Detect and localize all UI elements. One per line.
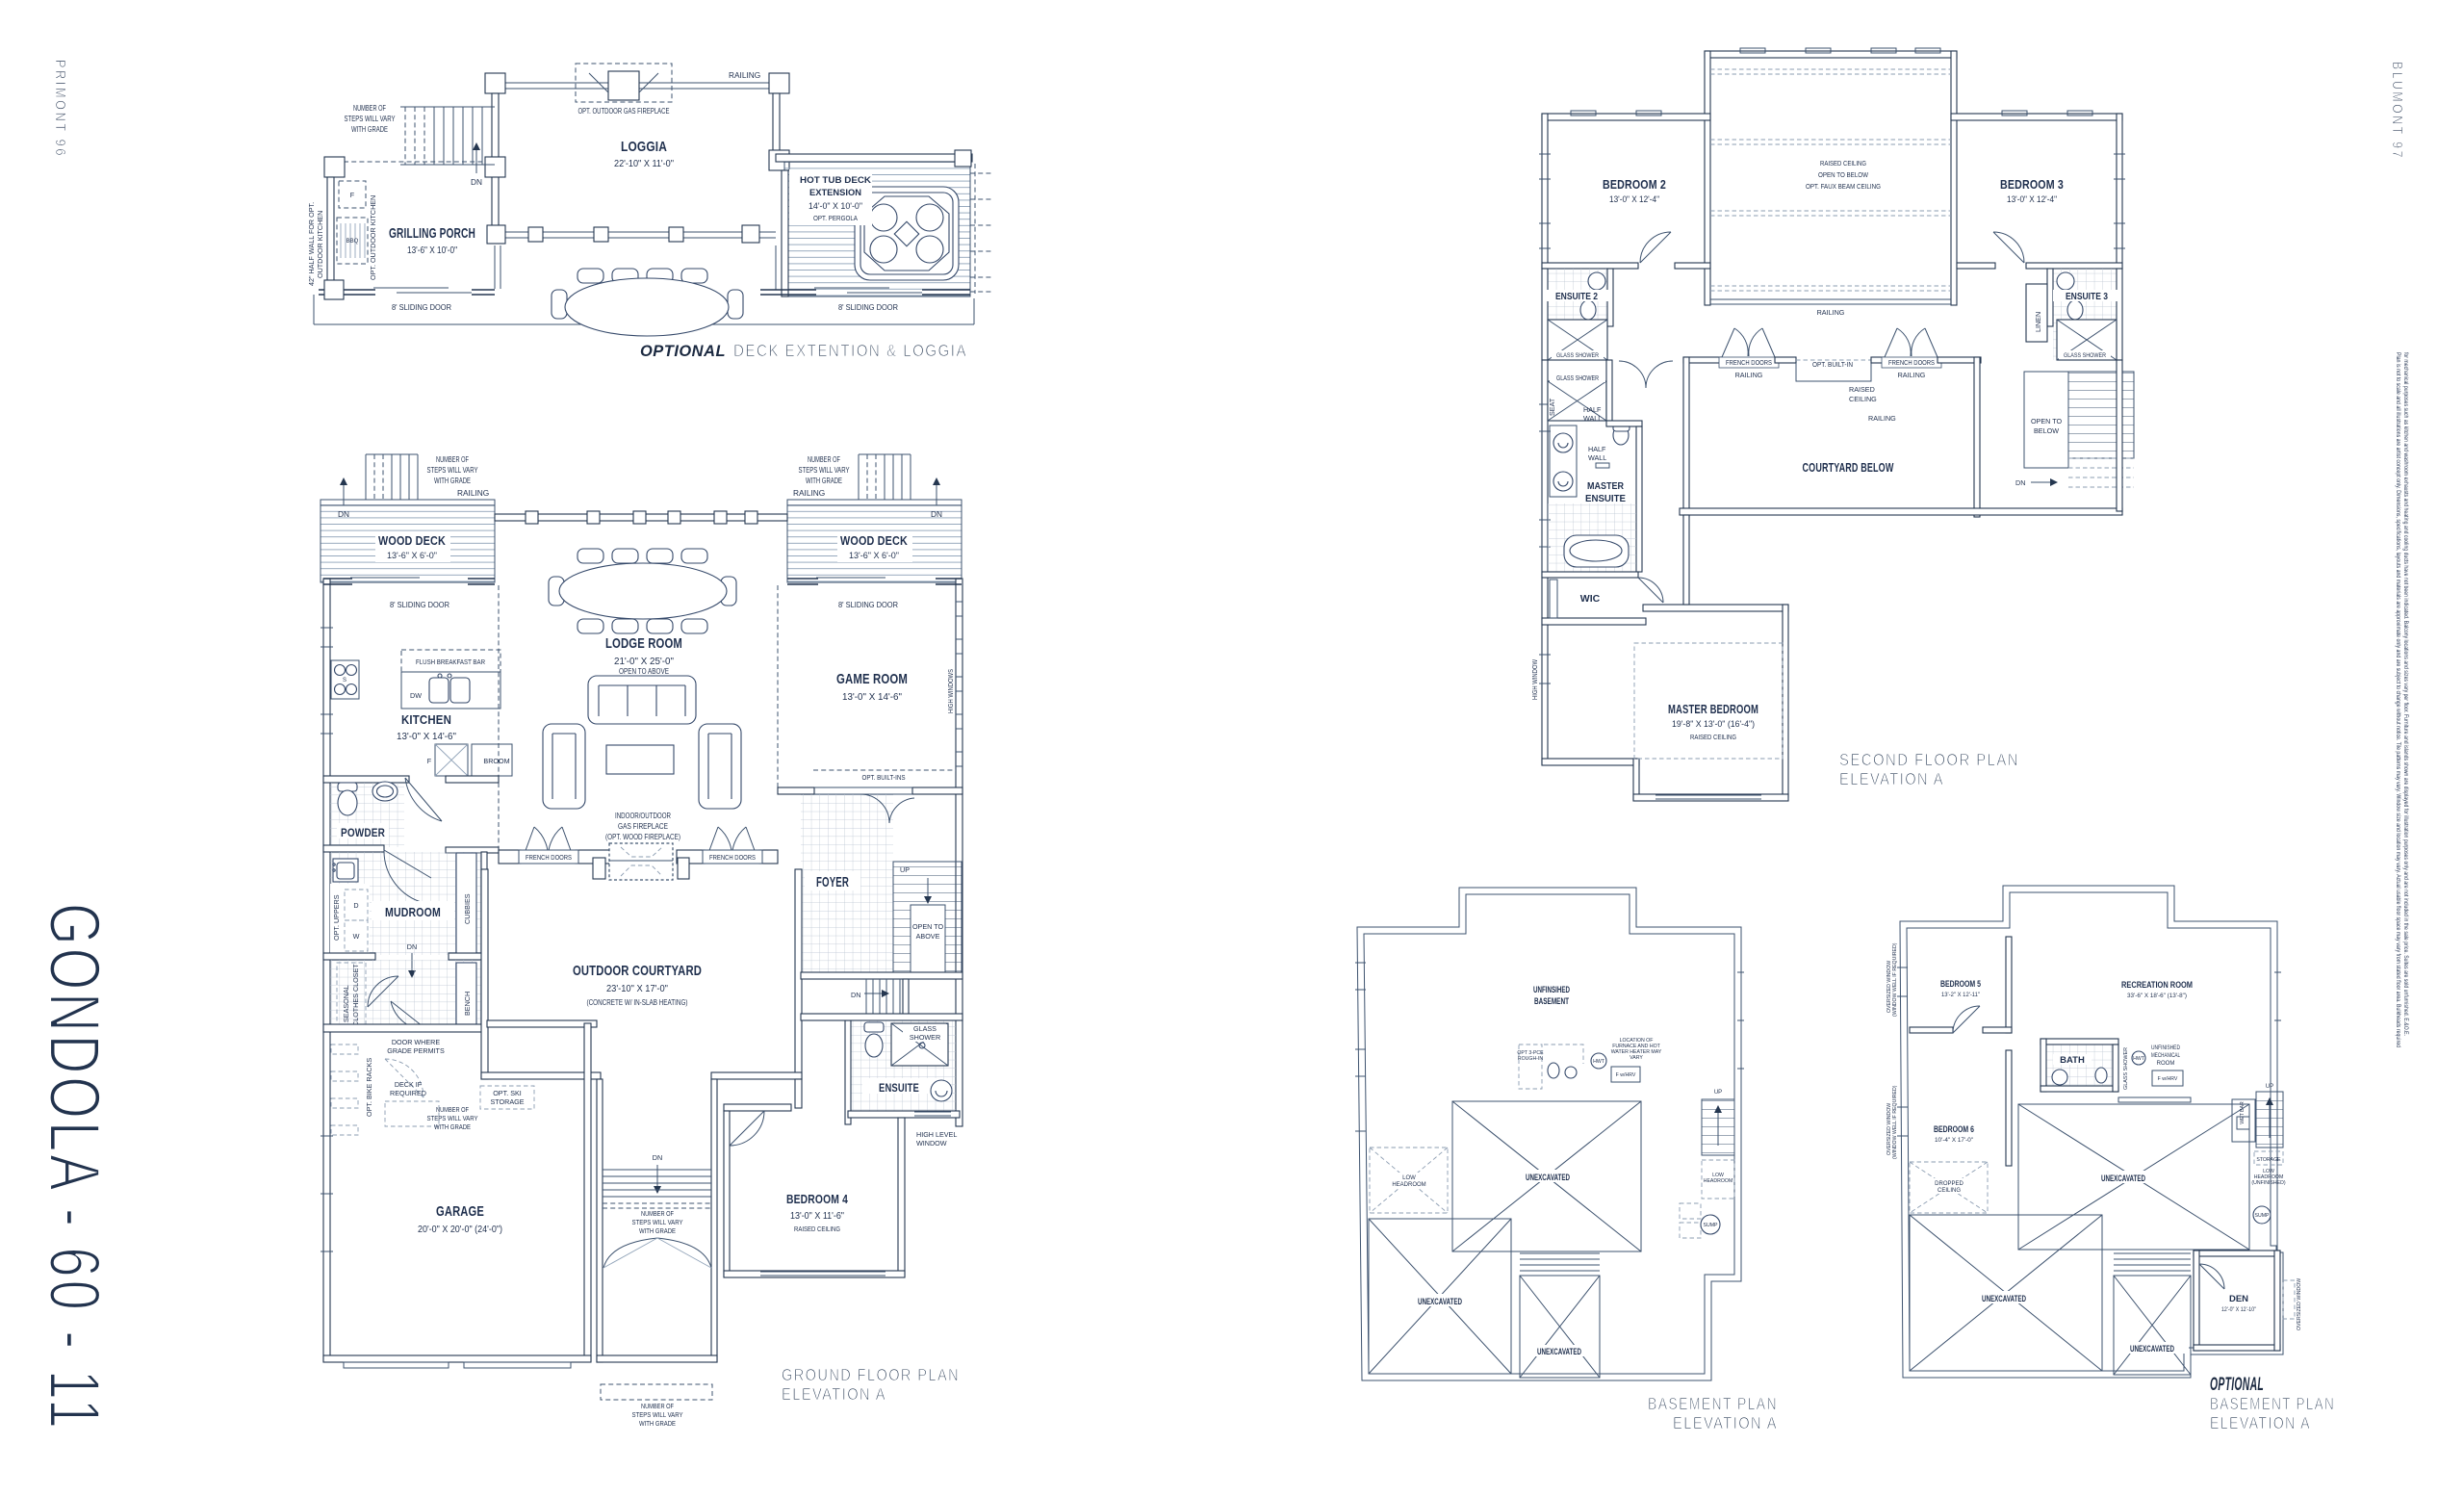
svg-text:WET BAR: WET BAR [2240, 1101, 2246, 1124]
svg-text:NUMBER OF: NUMBER OF [436, 1105, 469, 1114]
svg-text:GONDOLA - 60 - 11: GONDOLA - 60 - 11 [35, 903, 115, 1432]
svg-text:(CONCRETE W/ IN-SLAB HEATING): (CONCRETE W/ IN-SLAB HEATING) [587, 997, 688, 1007]
svg-text:DROPPED: DROPPED [1935, 1181, 1963, 1187]
svg-text:OPT. BUILT-INS: OPT. BUILT-INS [862, 773, 906, 782]
svg-text:SUMP: SUMP [2255, 1213, 2271, 1219]
svg-text:DW: DW [410, 691, 422, 700]
svg-text:F w/HRV: F w/HRV [2158, 1076, 2178, 1082]
svg-text:FLUSH BREAKFAST BAR: FLUSH BREAKFAST BAR [416, 658, 485, 666]
svg-text:WALL: WALL [1588, 453, 1606, 462]
svg-text:RAILING: RAILING [793, 488, 825, 498]
svg-text:Plan is not to scale and all i: Plan is not to scale and all illustratio… [2395, 352, 2401, 1047]
svg-text:OPT. OUTDOOR KITCHEN: OPT. OUTDOOR KITCHEN [369, 195, 377, 280]
svg-text:ELEVATION A: ELEVATION A [1673, 1413, 1778, 1432]
svg-text:RAILING: RAILING [1735, 371, 1763, 379]
svg-text:BASEMENT PLAN: BASEMENT PLAN [1648, 1394, 1778, 1413]
svg-text:ELEVATION A: ELEVATION A [1839, 769, 1944, 788]
svg-text:RAISED CEILING: RAISED CEILING [1820, 159, 1866, 168]
svg-text:RAISED CEILING: RAISED CEILING [794, 1225, 840, 1233]
svg-text:OPT. PERGOLA: OPT. PERGOLA [813, 214, 858, 222]
svg-text:ABOVE: ABOVE [916, 932, 940, 941]
svg-text:WALL: WALL [1583, 414, 1602, 423]
svg-text:BENCH: BENCH [463, 992, 472, 1016]
svg-text:HWT: HWT [2133, 1056, 2145, 1062]
svg-text:8' SLIDING DOOR: 8' SLIDING DOOR [390, 600, 449, 609]
svg-text:20'-0" X 20'-0" (24'-0"): 20'-0" X 20'-0" (24'-0") [418, 1225, 502, 1235]
svg-text:13'-0" X 14'-6": 13'-0" X 14'-6" [397, 732, 456, 742]
svg-text:COURTYARD BELOW: COURTYARD BELOW [1803, 460, 1894, 475]
svg-text:STEPS WILL VARY: STEPS WILL VARY [345, 114, 396, 123]
svg-text:REQUIRED: REQUIRED [390, 1089, 426, 1097]
svg-text:GRADE PERMITS: GRADE PERMITS [387, 1046, 445, 1055]
svg-text:OUTDOOR KITCHEN: OUTDOOR KITCHEN [316, 211, 324, 278]
svg-text:LOW: LOW [1402, 1175, 1416, 1181]
svg-text:13'-0" X 12'-4": 13'-0" X 12'-4" [1609, 194, 1659, 204]
svg-text:8' SLIDING DOOR: 8' SLIDING DOOR [838, 600, 898, 609]
svg-text:UNEXCAVATED: UNEXCAVATED [1526, 1173, 1570, 1183]
svg-text:UP: UP [900, 865, 910, 874]
svg-text:13'-0" X 12'-4": 13'-0" X 12'-4" [2007, 194, 2057, 204]
svg-text:WOOD DECK: WOOD DECK [378, 533, 446, 548]
svg-text:HWT: HWT [1593, 1059, 1605, 1065]
svg-text:OPT. FAUX BEAM CEILING: OPT. FAUX BEAM CEILING [1806, 182, 1881, 191]
svg-text:SHOWER: SHOWER [910, 1033, 940, 1042]
svg-text:8' SLIDING DOOR: 8' SLIDING DOOR [838, 302, 898, 312]
svg-text:DN: DN [2015, 478, 2025, 487]
svg-text:STEPS WILL VARY: STEPS WILL VARY [427, 1114, 478, 1122]
svg-text:VARY: VARY [1630, 1055, 1643, 1061]
svg-text:OPEN TO BELOW: OPEN TO BELOW [1818, 170, 1868, 179]
svg-text:12'-0" X 12'-10": 12'-0" X 12'-10" [2221, 1307, 2256, 1313]
svg-text:F: F [427, 757, 432, 765]
svg-text:STEPS WILL VARY: STEPS WILL VARY [632, 1218, 683, 1226]
svg-text:UNEXCAVATED: UNEXCAVATED [1418, 1297, 1462, 1307]
svg-text:GARAGE: GARAGE [436, 1203, 484, 1220]
svg-text:RAILING: RAILING [729, 70, 760, 80]
svg-text:GRILLING PORCH: GRILLING PORCH [389, 225, 475, 242]
svg-text:DN: DN [931, 509, 942, 519]
svg-text:OUTDOOR COURTYARD: OUTDOOR COURTYARD [573, 963, 702, 979]
svg-text:HALF: HALF [1583, 405, 1602, 414]
svg-text:CLOTHES CLOSET: CLOTHES CLOSET [351, 964, 360, 1026]
svg-text:UNEXCAVATED: UNEXCAVATED [1982, 1294, 2026, 1304]
svg-text:HALF: HALF [1588, 445, 1606, 453]
svg-text:BEDROOM 6: BEDROOM 6 [1934, 1124, 1974, 1135]
svg-text:UNEXCAVATED: UNEXCAVATED [1537, 1347, 1581, 1357]
svg-text:OPT. SKI: OPT. SKI [493, 1089, 522, 1097]
svg-text:HIGH WINDOWS: HIGH WINDOWS [946, 669, 955, 713]
svg-text:FRENCH DOORS: FRENCH DOORS [709, 853, 756, 862]
svg-text:WITH GRADE: WITH GRADE [806, 476, 842, 485]
svg-text:DN: DN [471, 177, 482, 187]
svg-text:ROOM: ROOM [2157, 1061, 2175, 1067]
svg-text:SECOND FLOOR PLAN: SECOND FLOOR PLAN [1839, 750, 2019, 769]
svg-text:UNFINISHED: UNFINISHED [2151, 1045, 2181, 1051]
svg-text:INDOOR/OUTDOOR: INDOOR/OUTDOOR [615, 811, 671, 820]
svg-text:SEASONAL: SEASONAL [342, 985, 350, 1022]
svg-text:HIGH LEVEL: HIGH LEVEL [916, 1130, 957, 1139]
svg-text:DECK EXTENTION & LOGGIA: DECK EXTENTION & LOGGIA [733, 341, 967, 360]
svg-text:MUDROOM: MUDROOM [385, 906, 441, 919]
svg-text:ENSUITE 3: ENSUITE 3 [2066, 291, 2108, 302]
svg-text:13'-6" X 6'-0": 13'-6" X 6'-0" [387, 551, 437, 560]
svg-text:OPT. BIKE RACKS: OPT. BIKE RACKS [365, 1058, 373, 1117]
svg-text:RAILING: RAILING [1898, 371, 1926, 379]
svg-text:OPTIONAL: OPTIONAL [2210, 1375, 2264, 1395]
svg-text:GROUND FLOOR PLAN: GROUND FLOOR PLAN [782, 1365, 960, 1384]
svg-text:GAS FIREPLACE: GAS FIREPLACE [618, 821, 668, 831]
svg-text:OVERSIZED WINDOW: OVERSIZED WINDOW [2297, 1278, 2302, 1330]
svg-text:OPT. OUTDOOR GAS FIREPLACE: OPT. OUTDOOR GAS FIREPLACE [578, 106, 670, 116]
svg-text:GLASS SHOWER: GLASS SHOWER [2064, 353, 2107, 359]
svg-text:BATH: BATH [2060, 1055, 2085, 1066]
svg-text:DN: DN [338, 509, 349, 519]
svg-text:NUMBER OF: NUMBER OF [808, 454, 840, 464]
svg-text:HEADROOM: HEADROOM [1704, 1178, 1733, 1184]
svg-text:for mechanical purposes such a: for mechanical purposes such as kitchen … [2402, 352, 2409, 1036]
svg-text:EXTENSION: EXTENSION [809, 188, 861, 198]
svg-text:RAILING: RAILING [1868, 414, 1896, 423]
svg-text:MASTER: MASTER [1587, 480, 1624, 492]
svg-text:OPT. UPPERS: OPT. UPPERS [332, 894, 341, 941]
svg-text:HOT TUB DECK: HOT TUB DECK [800, 175, 871, 186]
svg-text:HIGH WINDOW: HIGH WINDOW [1530, 659, 1539, 700]
svg-text:FRENCH DOORS: FRENCH DOORS [1726, 358, 1772, 367]
svg-text:BEDROOM 3: BEDROOM 3 [2000, 177, 2064, 192]
svg-text:ROUGH-IN: ROUGH-IN [1518, 1056, 1543, 1062]
svg-text:DN: DN [653, 1153, 662, 1162]
svg-text:RAILING: RAILING [1817, 308, 1845, 317]
svg-text:ELEVATION A: ELEVATION A [782, 1384, 886, 1404]
svg-text:STORAGE: STORAGE [2256, 1157, 2281, 1163]
svg-text:WINDOW: WINDOW [916, 1139, 947, 1148]
svg-text:NUMBER OF: NUMBER OF [353, 103, 386, 113]
svg-text:LINEN: LINEN [2034, 312, 2042, 332]
svg-text:10'-4" X 17'-0": 10'-4" X 17'-0" [1935, 1138, 1973, 1144]
svg-text:BEDROOM 5: BEDROOM 5 [1940, 979, 1982, 990]
svg-text:OPEN TO ABOVE: OPEN TO ABOVE [619, 666, 669, 676]
svg-text:NUMBER OF: NUMBER OF [436, 454, 469, 464]
svg-text:OPT. BUILT-IN: OPT. BUILT-IN [1812, 360, 1853, 369]
svg-text:19'-8" X 13'-0" (16'-4"): 19'-8" X 13'-0" (16'-4") [1672, 719, 1755, 729]
svg-text:DECK IF: DECK IF [395, 1080, 423, 1089]
svg-text:(OPT. WOOD FIREPLACE): (OPT. WOOD FIREPLACE) [605, 832, 680, 841]
svg-text:KITCHEN: KITCHEN [401, 712, 451, 727]
svg-text:ENSUITE: ENSUITE [1585, 493, 1626, 504]
svg-text:13'-0" X 11'-6": 13'-0" X 11'-6" [790, 1211, 844, 1222]
svg-text:STORAGE: STORAGE [490, 1097, 524, 1106]
svg-text:WIC: WIC [1580, 593, 1601, 605]
svg-text:DEN: DEN [2229, 1294, 2248, 1304]
svg-text:LODGE ROOM: LODGE ROOM [605, 635, 682, 652]
svg-text:RAISED CEILING: RAISED CEILING [1690, 733, 1736, 741]
svg-text:F w/HRV: F w/HRV [1616, 1072, 1636, 1078]
svg-text:BEDROOM 2: BEDROOM 2 [1603, 177, 1666, 192]
svg-text:CEILING: CEILING [1849, 395, 1877, 403]
svg-text:WITH GRADE: WITH GRADE [639, 1419, 676, 1428]
svg-text:UNEXCAVATED: UNEXCAVATED [2101, 1174, 2145, 1184]
svg-text:33'-6" X 18'-6" (13'-8"): 33'-6" X 18'-6" (13'-8") [2127, 993, 2187, 999]
svg-text:23'-10" X 17'-0": 23'-10" X 17'-0" [606, 984, 668, 994]
svg-text:D: D [353, 901, 358, 910]
svg-text:BEDROOM 4: BEDROOM 4 [786, 1192, 848, 1206]
svg-text:STEPS WILL VARY: STEPS WILL VARY [632, 1410, 683, 1419]
svg-text:GLASS SHOWER: GLASS SHOWER [1556, 353, 1600, 359]
svg-text:OPEN TO: OPEN TO [2031, 417, 2062, 426]
svg-text:(UNFINISHED): (UNFINISHED) [2251, 1180, 2285, 1186]
svg-text:PRIMONT 96: PRIMONT 96 [52, 60, 67, 158]
svg-text:W: W [353, 932, 360, 941]
svg-text:RAISED: RAISED [1849, 385, 1875, 394]
svg-text:RECREATION ROOM: RECREATION ROOM [2121, 980, 2193, 991]
svg-text:HEADROOM: HEADROOM [1392, 1182, 1425, 1188]
svg-text:(WINDOW WELL IF REQUIRED): (WINDOW WELL IF REQUIRED) [1892, 942, 1898, 1017]
svg-text:22'-10" X 11'-0": 22'-10" X 11'-0" [614, 159, 674, 169]
svg-text:14'-0" X 10'-0": 14'-0" X 10'-0" [808, 201, 862, 211]
svg-text:BLUMONT 97: BLUMONT 97 [2389, 62, 2404, 160]
svg-text:F: F [350, 191, 355, 199]
svg-text:FRENCH DOORS: FRENCH DOORS [1888, 358, 1935, 367]
svg-text:MECHANICAL: MECHANICAL [2151, 1053, 2181, 1059]
svg-text:WITH GRADE: WITH GRADE [639, 1226, 676, 1235]
svg-text:UNFINSIHED: UNFINSIHED [1533, 985, 1570, 995]
svg-text:BASEMENT PLAN: BASEMENT PLAN [2210, 1394, 2335, 1413]
svg-text:DOOR WHERE: DOOR WHERE [392, 1038, 441, 1046]
svg-text:GLASS SHOWER: GLASS SHOWER [1556, 374, 1599, 382]
svg-text:FRENCH DOORS: FRENCH DOORS [526, 853, 572, 862]
svg-text:BELOW: BELOW [2034, 426, 2059, 435]
svg-text:NUMBER OF: NUMBER OF [641, 1209, 674, 1218]
svg-text:POWDER: POWDER [341, 826, 385, 839]
svg-text:MASTER BEDROOM: MASTER BEDROOM [1668, 702, 1758, 716]
svg-text:BASEMENT: BASEMENT [1534, 996, 1569, 1007]
svg-text:STEPS WILL VARY: STEPS WILL VARY [799, 465, 850, 475]
svg-text:SUMP: SUMP [1704, 1223, 1719, 1228]
svg-text:DN: DN [407, 942, 417, 951]
svg-text:13'-6" X 10'-0": 13'-6" X 10'-0" [407, 245, 457, 256]
svg-text:BBQ: BBQ [346, 239, 359, 245]
svg-text:STEPS WILL VARY: STEPS WILL VARY [427, 465, 478, 475]
svg-text:LOGGIA: LOGGIA [621, 139, 667, 155]
svg-text:42" HALF WALL FOR OPT.: 42" HALF WALL FOR OPT. [307, 202, 316, 286]
svg-text:FOYER: FOYER [816, 874, 849, 890]
svg-text:13'-2" X 12'-11": 13'-2" X 12'-11" [1941, 993, 1980, 998]
svg-text:WITH GRADE: WITH GRADE [351, 124, 388, 134]
svg-text:WITH GRADE: WITH GRADE [434, 1122, 471, 1131]
svg-text:CUBBIES: CUBBIES [463, 893, 472, 924]
svg-text:OPEN TO: OPEN TO [912, 922, 943, 931]
svg-text:GAME ROOM: GAME ROOM [836, 671, 908, 687]
svg-text:GLASS: GLASS [913, 1024, 937, 1033]
svg-text:WOOD DECK: WOOD DECK [840, 533, 908, 548]
svg-text:NUMBER OF: NUMBER OF [641, 1402, 674, 1410]
svg-text:BROOM: BROOM [483, 757, 509, 765]
svg-text:13'-6" X 6'-0": 13'-6" X 6'-0" [849, 551, 899, 560]
svg-text:UNEXCAVATED: UNEXCAVATED [2130, 1344, 2174, 1354]
svg-text:OPTIONAL: OPTIONAL [640, 343, 726, 360]
svg-text:S: S [343, 678, 346, 684]
svg-text:UP: UP [1714, 1090, 1722, 1096]
svg-text:13'-0" X 14'-6": 13'-0" X 14'-6" [842, 692, 902, 703]
svg-text:RAILING: RAILING [457, 488, 489, 498]
svg-text:ELEVATION A: ELEVATION A [2210, 1413, 2311, 1432]
svg-text:GLASS SHOWER: GLASS SHOWER [2123, 1047, 2129, 1090]
svg-text:WITH GRADE: WITH GRADE [434, 476, 471, 485]
svg-text:8' SLIDING DOOR: 8' SLIDING DOOR [392, 302, 451, 312]
svg-text:DN: DN [851, 991, 860, 999]
svg-text:CEILING: CEILING [1938, 1188, 1961, 1194]
svg-text:ENSUITE: ENSUITE [879, 1081, 919, 1095]
svg-text:UP: UP [2266, 1084, 2273, 1090]
svg-text:ENSUITE 2: ENSUITE 2 [1555, 291, 1598, 302]
svg-text:(WINDOW WELL IF REQUIRED): (WINDOW WELL IF REQUIRED) [1892, 1085, 1898, 1159]
svg-text:SEAT: SEAT [1548, 398, 1556, 416]
